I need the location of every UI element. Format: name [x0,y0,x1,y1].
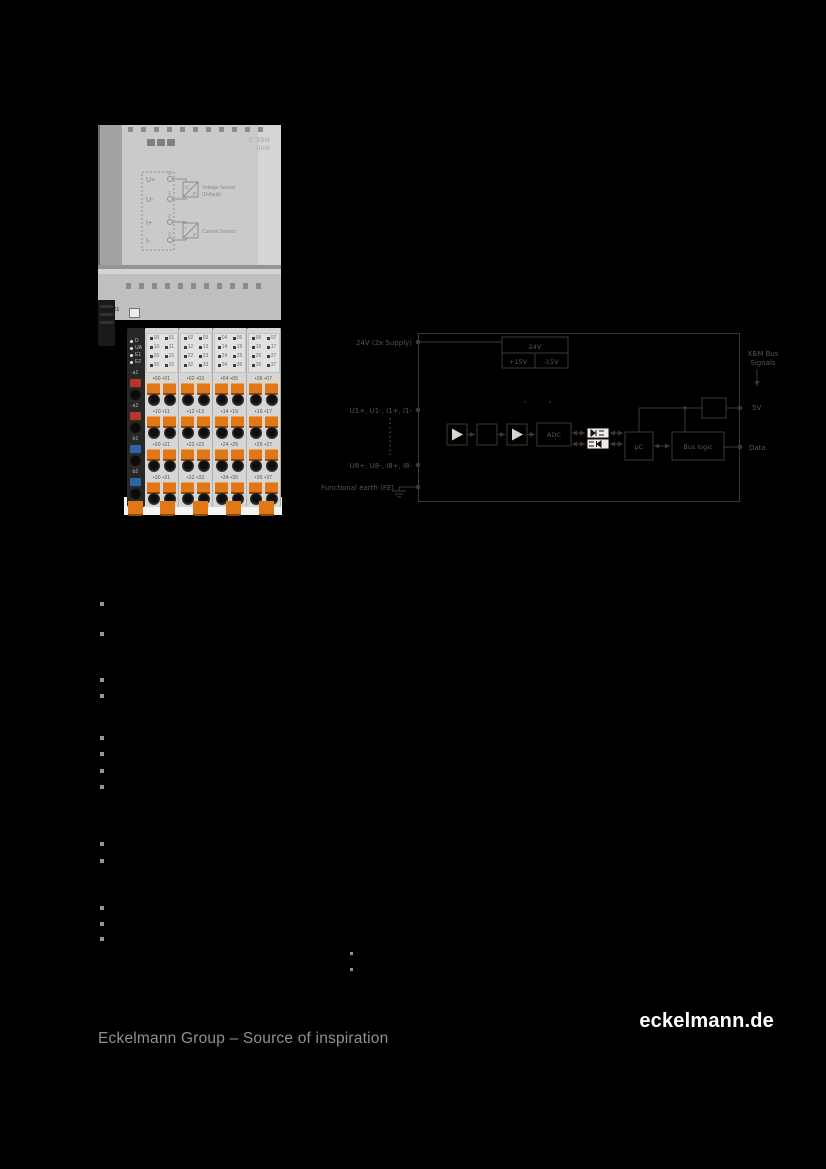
clamp-channel-labels: •10 •11 [145,409,178,415]
channel-led-number: 34 [222,363,228,368]
clamp-channel-labels: •00 •01 [145,376,178,382]
pin-3: 3 [168,232,171,238]
wire-socket [250,427,262,439]
bus-driver-box [702,398,726,418]
bus-connector [98,300,115,346]
terminal-column: 0001101120213031•00 •01•10 •11•20 •21•30… [145,328,179,507]
channel-led-number: 01 [169,336,175,341]
wire-socket [266,460,278,472]
sensor1-letter-u: U [185,185,189,191]
terminal-dot-data [738,445,743,450]
status-led-label: D [135,339,139,344]
wire-socket [232,427,244,439]
clamp-channel-labels: •14 •15 [213,409,246,415]
release-tab [259,501,274,516]
wire-socket [232,460,244,472]
channel-led-number: 32 [188,363,194,368]
power-terminal-lever [130,478,141,487]
channel-led-dot [252,355,255,358]
pin-6: 6 [168,171,171,177]
power-terminal-lever [130,379,141,388]
status-led-row: E1 [130,353,141,358]
channel-led-row: 2223 [181,352,211,361]
wire-socket [216,460,228,472]
status-led-dot [130,354,133,357]
channel-led-dot [199,364,202,367]
vent-slot [219,127,224,132]
channel-led-number: 37 [271,363,277,368]
clamp-channel-labels: •04 •05 [213,376,246,382]
channel-led-number: 22 [188,354,194,359]
vent-slot [245,127,250,132]
pin-1: 1 [168,191,171,197]
terminal-i-minus: I- [146,238,151,245]
label-bus-logic: Bus logic [683,443,713,451]
channel-led-cell: 07 [267,336,277,341]
channel-led-number: 04 [222,336,228,341]
channel-led-dot [150,364,153,367]
channel-led-row: 0607 [249,334,279,343]
wire-socket [164,427,176,439]
vent-slot [206,127,211,132]
clamp-channel-labels: •26 •27 [247,442,280,448]
optocouplers [587,428,609,449]
wire-socket [182,493,194,505]
list-bullet [100,859,104,863]
wire-socket [164,460,176,472]
list-bullet [100,632,104,636]
power-terminal-lever [130,445,141,454]
channel-led-dot [199,346,202,349]
channel-led-dot [267,346,270,349]
wire-socket [148,427,160,439]
power-terminal-label: ·a2 [131,404,138,409]
sub-list-bullet [350,952,353,955]
clamp-channel-labels: •12 •13 [179,409,212,415]
channel-led-dot [218,346,221,349]
channel-led-cell: 15 [233,345,243,350]
channel-led-number: 11 [169,345,174,350]
wire-socket [182,460,194,472]
wire-socket [182,394,194,406]
channel-led-dot [233,355,236,358]
footnote-mark-2 [549,401,551,403]
clamp-channel-labels: •24 •25 [213,442,246,448]
channel-led-number: 00 [154,336,160,341]
channel-led-cell: 32 [184,363,194,368]
release-tab [160,501,175,516]
terminal-dot-ch1 [416,408,421,413]
power-terminal-socket [129,488,142,501]
vent-slot [141,127,146,132]
channel-led-cell: 02 [184,336,194,341]
channel-led-row: 0001 [147,334,177,343]
channel-led-dot [165,346,168,349]
label-functional-earth: Functional earth (FE) [321,484,394,492]
footer-slogan: Eckelmann Group – Source of inspiration [98,1030,388,1048]
power-terminal-socket [129,455,142,468]
channel-led-number: 10 [154,345,160,350]
list-bullet [100,785,104,789]
channel-led-number: 21 [169,354,175,359]
label-minus15v: -15V [543,358,559,366]
channel-led-row: 3031 [147,361,177,370]
vent-slot [191,283,196,289]
channel-led-cell: 00 [150,336,160,341]
clamp-channel-labels: •20 •21 [145,442,178,448]
channel-led-number: 13 [203,345,209,350]
vent-slot [178,283,183,289]
channel-led-cell: 31 [165,363,175,368]
model-label: E°XBM AI08 [226,137,270,153]
channel-led-dot [267,337,270,340]
release-tab [226,501,241,516]
power-terminal-label: ·b2 [131,470,138,475]
wire-socket [148,394,160,406]
vent-slot [256,283,261,289]
channel-led-number: 35 [237,363,243,368]
power-terminal-label: ·b1 [131,437,138,442]
product-photo: E°XBM AI08 U+ U- I+ I- 6 1 2 3 U P I P V… [98,125,281,515]
channel-led-panel: 0405141524253435 [214,333,246,373]
channel-led-cell: 23 [199,354,209,359]
channel-led-number: 15 [237,345,243,350]
channel-led-panel: 0001101120213031 [146,333,178,373]
clamp-channel-labels: •02 •03 [179,376,212,382]
status-led-row: E2 [130,360,141,365]
release-tab [193,501,208,516]
vent-slot [152,283,157,289]
channel-led-number: 31 [169,363,175,368]
terminal-dot-24v [416,340,421,345]
wire-socket [266,427,278,439]
power-terminal-lever [130,412,141,421]
clamp-channel-labels: •34 •35 [213,475,246,481]
terminal-u-minus: U- [146,197,154,204]
terminal-u-plus: U+ [146,177,155,184]
channel-led-dot [218,355,221,358]
terminal-i-plus: I+ [146,220,152,227]
clamp-channel-labels: •30 •31 [145,475,178,481]
clamp-channel-labels: •06 •07 [247,376,280,382]
terminal-dot-fe [416,485,421,490]
channel-led-dot [252,346,255,349]
channel-led-number: 36 [256,363,262,368]
channel-led-row: 3233 [181,361,211,370]
certification-marks [147,139,175,146]
channel-led-number: 05 [237,336,243,341]
channel-led-row: 3435 [215,361,245,370]
diagram-outer-box [419,334,740,502]
channel-led-cell: 12 [184,345,194,350]
label-uc: µC [635,443,644,451]
vent-slot [139,283,144,289]
wire-socket [232,394,244,406]
sub-list-bullet [350,968,353,971]
channel-led-row: 2425 [215,352,245,361]
channel-led-dot [267,355,270,358]
status-led-dot [130,361,133,364]
status-led-label: UA [135,346,142,351]
wire-socket [250,460,262,472]
channel-led-number: 16 [256,345,262,350]
footnote-mark-1 [524,401,526,403]
wire-socket [216,394,228,406]
vent-slot [217,283,222,289]
channel-led-row: 0405 [215,334,245,343]
channel-led-row: 3637 [249,361,279,370]
channel-led-dot [218,337,221,340]
channel-led-cell: 03 [199,336,209,341]
channel-led-number: 02 [188,336,194,341]
status-led-dot [130,347,133,350]
power-terminal-socket [129,389,142,402]
channel-led-row: 1617 [249,343,279,352]
channel-led-number: 23 [203,354,209,359]
channel-led-cell: 37 [267,363,277,368]
channel-led-cell: 11 [165,345,174,350]
channel-led-cell: 04 [218,336,228,341]
channel-led-cell: 25 [233,354,243,359]
model-series: E°XBM [226,137,270,145]
sensor2-letter-i: I [185,226,186,232]
model-type: AI08 [226,145,270,153]
channel-led-number: 12 [188,345,194,350]
terminal-column: 0607161726273637•06 •07•16 •17•26 •27•36… [247,328,281,507]
channel-led-dot [218,364,221,367]
vent-slot [230,283,235,289]
status-led-label: E2 [135,360,141,365]
channel-led-dot [252,337,255,340]
status-led-label: E1 [135,353,141,358]
list-bullet [100,752,104,756]
channel-led-cell: 13 [199,345,209,350]
clamp-channel-labels: •16 •17 [247,409,280,415]
channel-led-dot [150,346,153,349]
wire-socket [148,493,160,505]
channel-led-row: 2627 [249,352,279,361]
label-channel8: U8+, U8-, I8+, I8- [350,462,413,470]
wire-socket [164,394,176,406]
channel-led-number: 27 [271,354,277,359]
channel-led-number: 17 [271,345,277,350]
vent-slot [165,283,170,289]
label-signals: Signals [750,359,776,367]
vent-slot [180,127,185,132]
wire-socket [182,427,194,439]
channel-led-cell: 35 [233,363,243,368]
channel-led-cell: 24 [218,354,228,359]
terminal-dot-ch8 [416,463,421,468]
channel-led-dot [165,355,168,358]
channel-led-cell: 16 [252,345,262,350]
amp2-triangle-icon [512,429,523,441]
power-terminal-socket [129,422,142,435]
channel-led-number: 33 [203,363,209,368]
vent-slot [204,283,209,289]
channel-led-dot [233,346,236,349]
channel-led-dot [184,337,187,340]
label-data: Data [749,444,766,452]
terminal-column: 0203121322233233•02 •03•12 •13•22 •23•32… [179,328,213,507]
channel-led-dot [184,364,187,367]
channel-led-dot [165,337,168,340]
list-bullet [100,602,104,606]
clamp-channel-labels: •36 •37 [247,475,280,481]
wire-socket [148,460,160,472]
status-led-column: DUAE1E2·a1·a2·b1·b2 [127,328,145,507]
channel-led-number: 14 [222,345,228,350]
label-5v: 5V [752,404,761,412]
label-24v: 24V [529,343,542,351]
terminal-dot-5v [738,406,743,411]
filter-box [477,424,497,445]
connector-x1-slot [129,308,140,318]
channel-led-panel: 0607161726273637 [248,333,280,373]
channel-led-row: 1011 [147,343,177,352]
status-led-row: D [130,339,139,344]
channel-led-number: 30 [154,363,160,368]
vent-slot [243,283,248,289]
module-mid-vents [126,283,261,289]
wire-socket [198,427,210,439]
list-bullet [100,736,104,740]
channel-led-dot [199,337,202,340]
channel-led-dot [233,337,236,340]
channel-led-dot [252,364,255,367]
list-bullet [100,906,104,910]
vent-slot [154,127,159,132]
channel-led-cell: 34 [218,363,228,368]
clamp-channel-labels: •22 •23 [179,442,212,448]
channel-led-number: 06 [256,336,262,341]
label-channel1: U1+, U1-, I1+, I1- [350,407,413,415]
label-plus15v: +15V [509,358,528,366]
voltage-sensor-label: Voltage Sensor [202,185,236,191]
wire-socket [216,427,228,439]
channel-led-number: 07 [271,336,277,341]
channel-led-number: 03 [203,336,209,341]
release-tab [128,501,143,516]
channel-led-row: 1415 [215,343,245,352]
label-xbm-bus: XBM Bus [748,350,779,358]
channel-led-dot [165,364,168,367]
channel-led-row: 0203 [181,334,211,343]
wire-socket [198,460,210,472]
clamp-channel-labels: •32 •33 [179,475,212,481]
terminal-column: 0405141524253435•04 •05•14 •15•24 •25•34… [213,328,247,507]
vent-slot [128,127,133,132]
channel-led-row: 1213 [181,343,211,352]
channel-led-dot [184,346,187,349]
channel-led-dot [184,355,187,358]
current-sensor-label: Current Sensor [202,229,236,235]
channel-led-cell: 20 [150,354,160,359]
channel-led-panel: 0203121322233233 [180,333,212,373]
module-left-side [98,125,124,265]
channel-led-number: 20 [154,354,160,359]
list-bullet [100,694,104,698]
wiring-schematic: U+ U- I+ I- 6 1 2 3 U P I P Voltage Sens… [138,167,278,255]
list-bullet [100,769,104,773]
channel-led-number: 26 [256,354,262,359]
channel-led-cell: 10 [150,345,160,350]
label-supply: 24V (2x Supply) [356,339,412,347]
channel-led-cell: 17 [267,345,277,350]
channel-led-dot [199,355,202,358]
block-diagram: 24V (2x Supply) U1+, U1-, I1+, I1- U8+, … [320,328,795,513]
channel-led-number: 24 [222,354,228,359]
list-bullet [100,842,104,846]
wire-socket [250,394,262,406]
channel-led-cell: 22 [184,354,194,359]
list-bullet [100,678,104,682]
channel-led-cell: 05 [233,336,243,341]
footer-website: eckelmann.de [639,1010,774,1033]
wire-socket [198,394,210,406]
module-mid-highlight [98,269,281,274]
channel-led-cell: 26 [252,354,262,359]
voltage-default-label: (Default) [202,192,222,198]
channel-led-cell: 21 [165,354,175,359]
channel-led-number: 25 [237,354,243,359]
junction-dot [683,406,686,409]
optocoupler-1 [587,428,609,438]
status-led-row: UA [130,346,142,351]
vent-slot [126,283,131,289]
channel-led-cell: 36 [252,363,262,368]
wire-socket [266,394,278,406]
channel-led-dot [233,364,236,367]
channel-led-cell: 30 [150,363,160,368]
module-top-vents [128,127,263,132]
vent-slot [167,127,172,132]
channel-led-dot [150,337,153,340]
vent-slot [193,127,198,132]
channel-led-cell: 01 [165,336,175,341]
vent-slot [258,127,263,132]
channel-led-cell: 06 [252,336,262,341]
list-bullet [100,937,104,941]
channel-led-dot [150,355,153,358]
list-bullet [100,922,104,926]
module-mid-band [98,269,281,320]
channel-led-row: 2021 [147,352,177,361]
channel-led-cell: 27 [267,354,277,359]
channel-led-cell: 14 [218,345,228,350]
label-adc: ADC [547,431,561,439]
status-led-dot [130,340,133,343]
pin-2: 2 [168,214,171,220]
vent-slot [232,127,237,132]
channel-led-dot [267,364,270,367]
power-terminal-label: ·a1 [131,371,138,376]
channel-led-cell: 33 [199,363,209,368]
amp1-triangle-icon [452,429,463,441]
